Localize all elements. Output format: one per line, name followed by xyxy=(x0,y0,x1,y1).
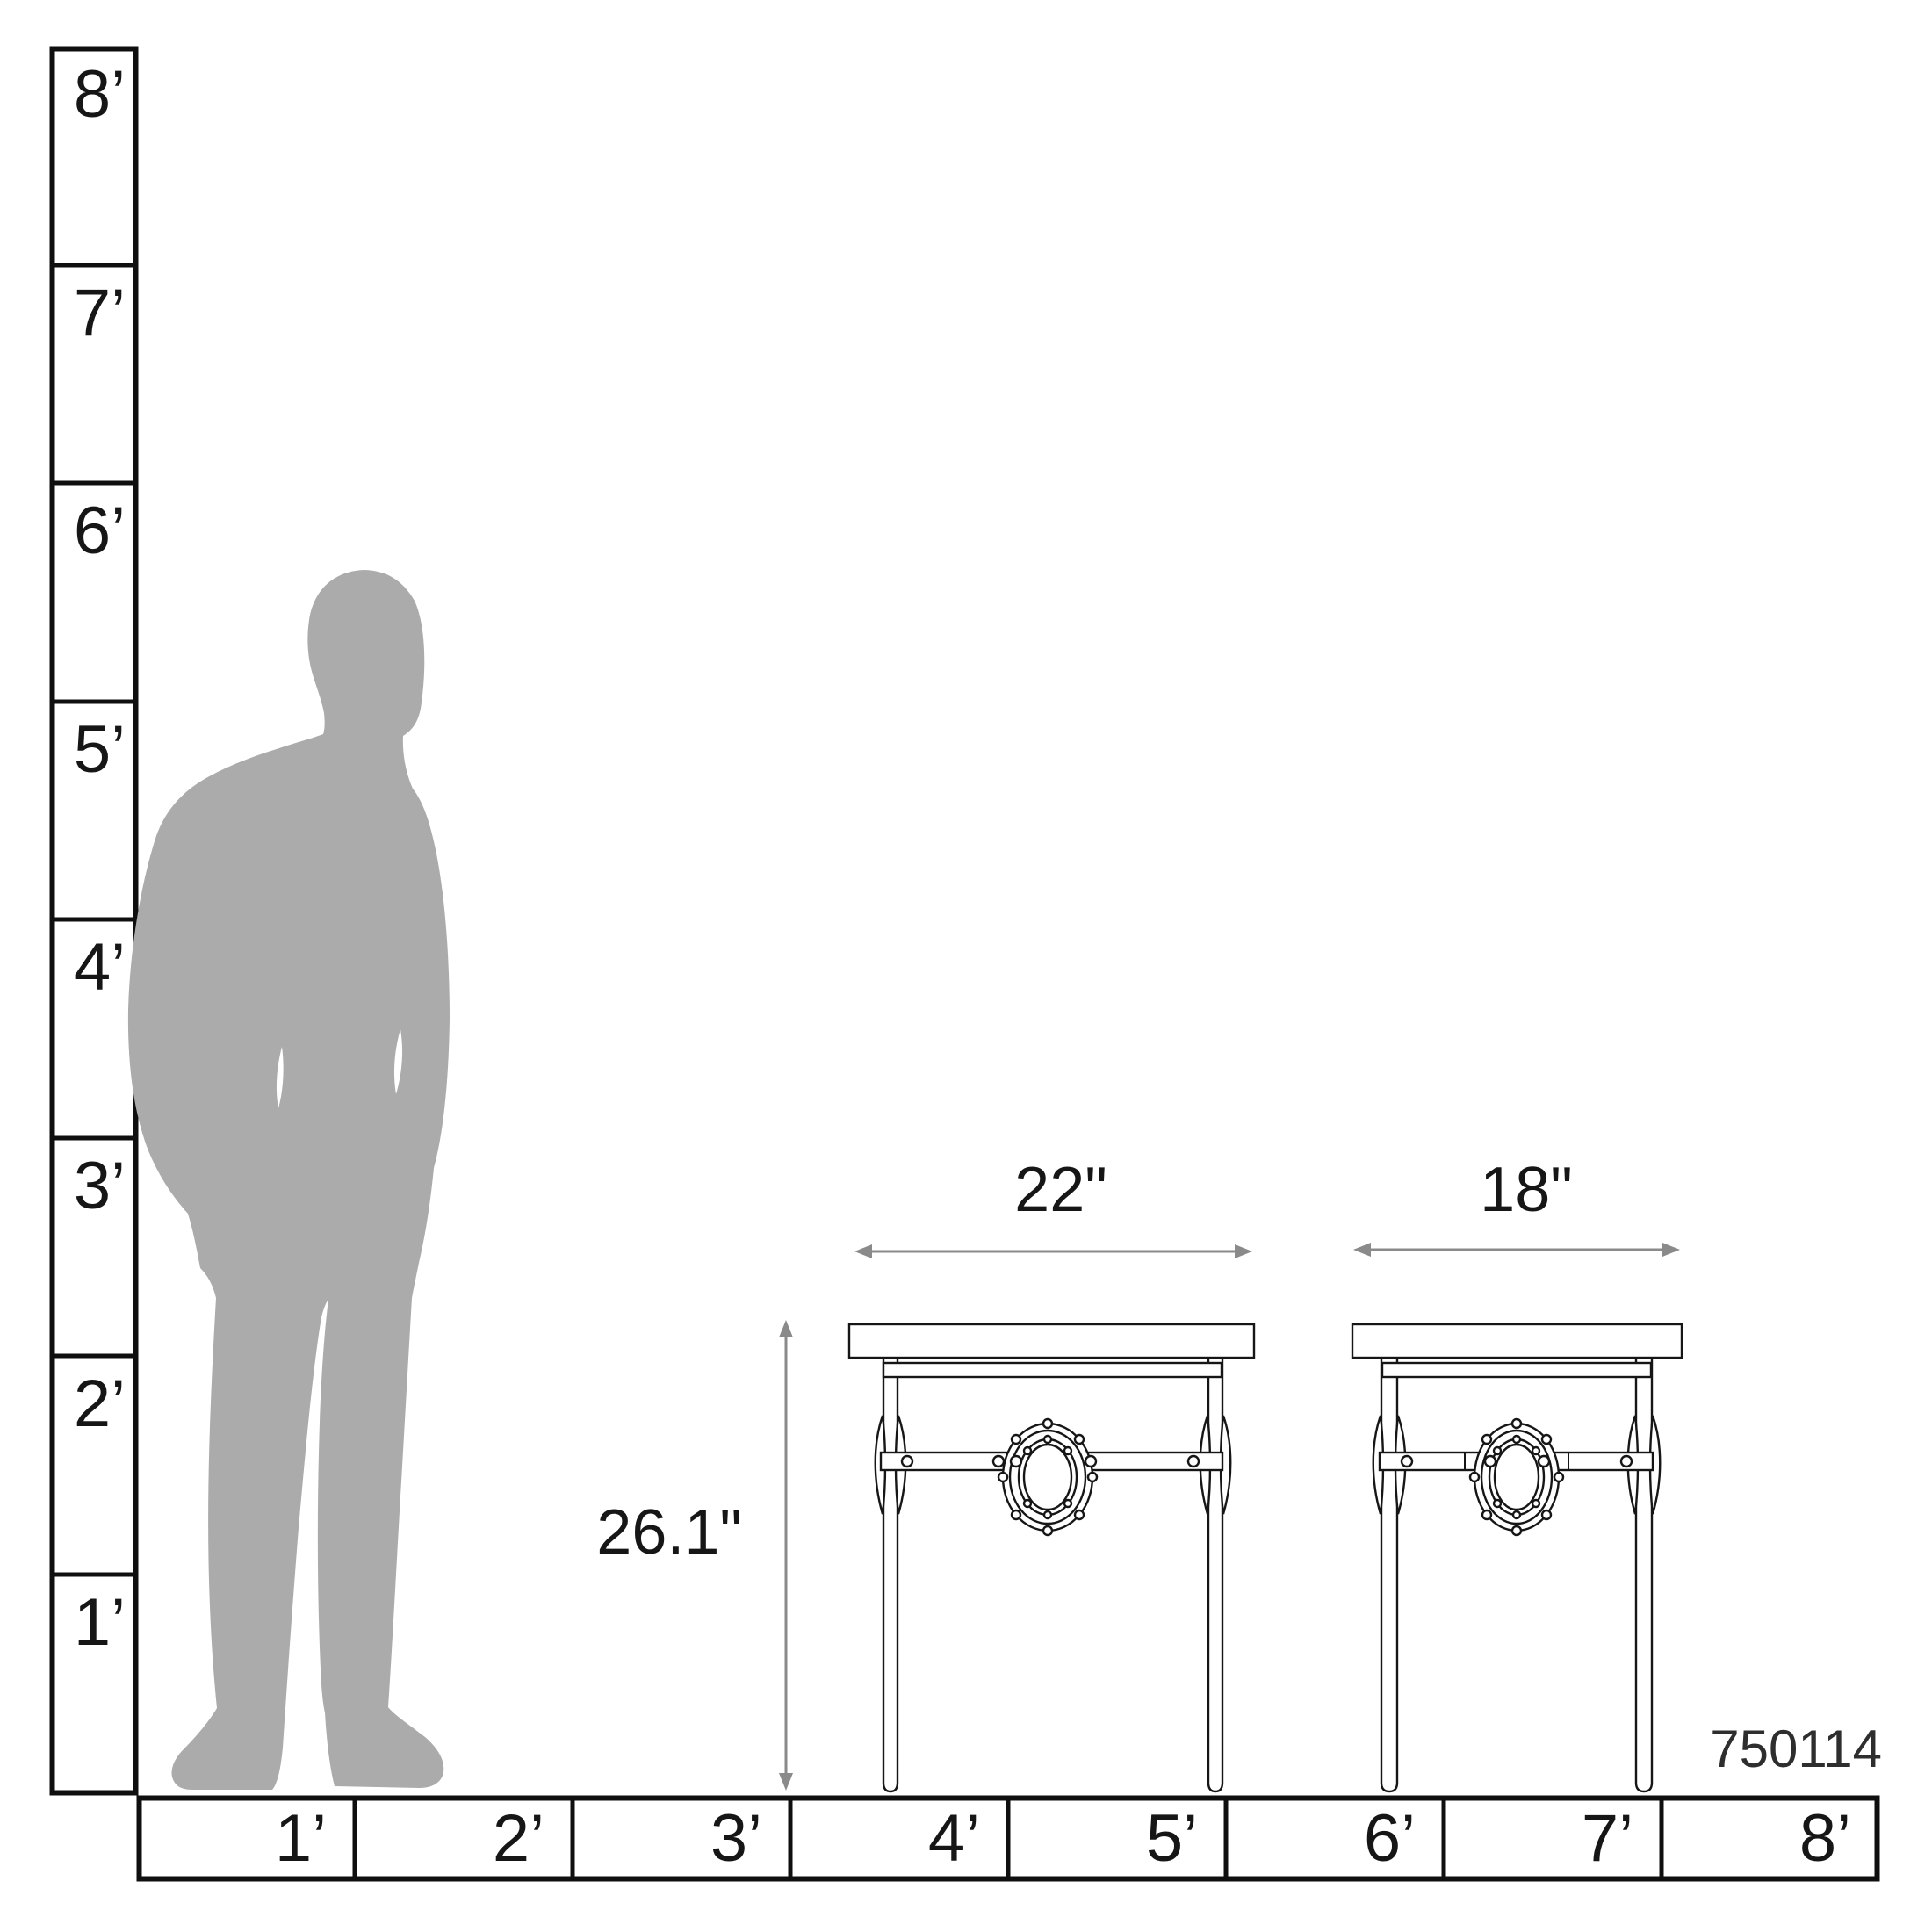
horizontal-ruler-label-2ft: 2’ xyxy=(355,1806,544,1872)
arrowhead-up-icon xyxy=(779,1320,793,1337)
side-table-22 xyxy=(849,1324,1254,1791)
ring-medallion xyxy=(1470,1419,1563,1535)
side-table-18 xyxy=(1352,1324,1682,1791)
horizontal-ruler-label-4ft: 4’ xyxy=(790,1806,980,1872)
man-silhouette-body xyxy=(128,570,450,1790)
ring-medallion xyxy=(998,1419,1097,1535)
table-apron xyxy=(1382,1363,1651,1377)
diagram-canvas xyxy=(0,0,1932,1932)
height-arrow-26 xyxy=(779,1320,793,1791)
arrowhead-right-icon xyxy=(1662,1243,1680,1257)
table-leg xyxy=(1381,1358,1397,1791)
table-apron xyxy=(883,1363,1222,1377)
arrowhead-right-icon xyxy=(1235,1244,1252,1258)
table-top xyxy=(1352,1324,1682,1358)
vertical-ruler-label-4ft: 4’ xyxy=(50,934,126,1001)
scale-diagram: 8’ 7’ 6’ 5’ 4’ 3’ 2’ 1’ 1’ 2’ 3’ 4’ 5’ 6… xyxy=(0,0,1932,1932)
table-leg xyxy=(883,1358,898,1791)
vertical-ruler-label-1ft: 1’ xyxy=(50,1590,126,1656)
horizontal-ruler-label-5ft: 5’ xyxy=(1008,1806,1198,1872)
horizontal-ruler-label-7ft: 7’ xyxy=(1444,1806,1633,1872)
product-code: 750114 xyxy=(1618,1723,1882,1776)
vertical-ruler-label-6ft: 6’ xyxy=(50,498,126,565)
width-arrow-18 xyxy=(1353,1243,1680,1257)
arrowhead-left-icon xyxy=(854,1244,872,1258)
horizontal-ruler-label-3ft: 3’ xyxy=(573,1806,762,1872)
vertical-ruler-label-3ft: 3’ xyxy=(50,1153,126,1220)
vertical-ruler-label-8ft: 8’ xyxy=(50,61,126,128)
vertical-ruler-label-2ft: 2’ xyxy=(50,1371,126,1438)
vertical-ruler-label-7ft: 7’ xyxy=(50,280,126,347)
width-arrow-22 xyxy=(854,1244,1252,1258)
left-table-width-label: 22" xyxy=(929,1158,1193,1222)
table-top xyxy=(849,1324,1254,1358)
right-table-width-label: 18" xyxy=(1395,1158,1658,1222)
horizontal-ruler-label-6ft: 6’ xyxy=(1226,1806,1416,1872)
table-leg xyxy=(1208,1358,1222,1791)
man-silhouette xyxy=(128,570,450,1790)
arrowhead-down-icon xyxy=(779,1773,793,1791)
vertical-ruler-label-5ft: 5’ xyxy=(50,717,126,783)
table-height-label: 26.1" xyxy=(479,1501,742,1564)
arrowhead-left-icon xyxy=(1353,1243,1371,1257)
horizontal-ruler-label-8ft: 8’ xyxy=(1662,1806,1851,1872)
horizontal-ruler-label-1ft: 1’ xyxy=(137,1806,327,1872)
